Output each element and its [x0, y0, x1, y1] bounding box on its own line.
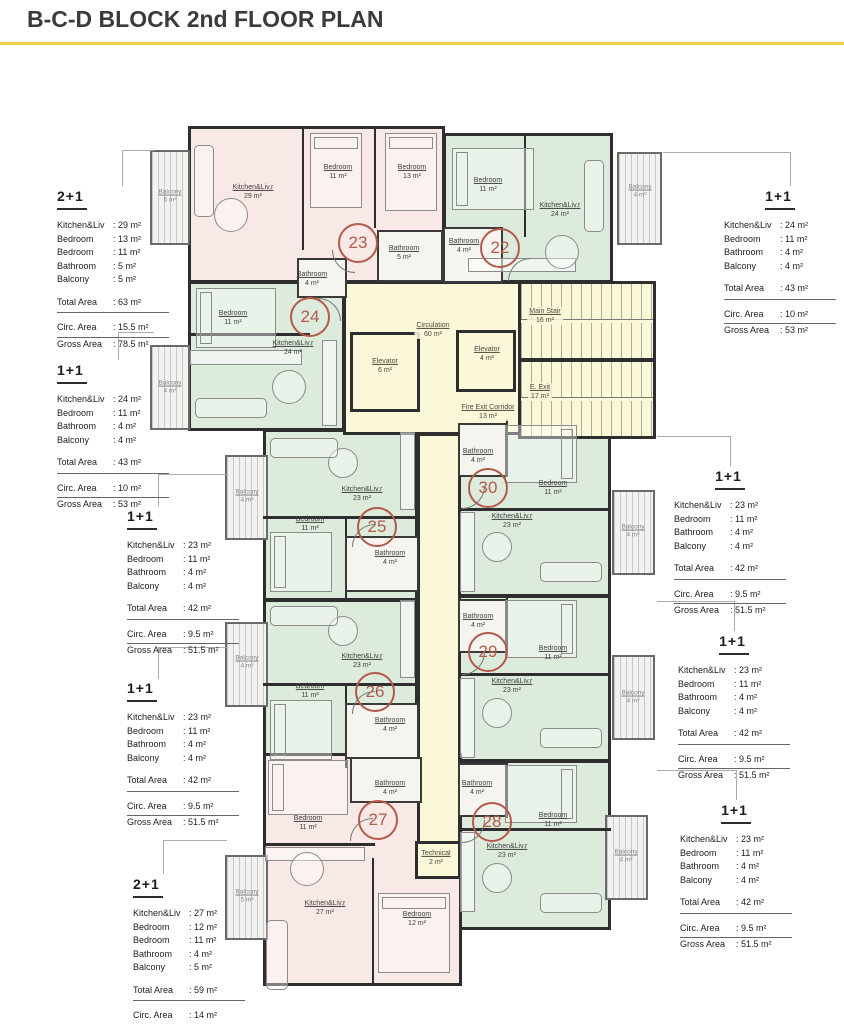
room-label: Bedroom11 m² [294, 814, 322, 832]
total-value: : 43 m² [113, 456, 169, 470]
room-area: 11 m² [539, 488, 567, 497]
sofa-furniture [540, 893, 602, 913]
room-name: Balcony [614, 849, 637, 857]
spec-item-label: Bedroom [133, 921, 189, 935]
partition-wall [374, 128, 376, 228]
kitchen-counter [322, 340, 337, 426]
room-name: Bathroom [375, 549, 405, 558]
spec-item-row: Bathroom: 4 m² [680, 860, 792, 874]
gross-label: Gross Area [127, 644, 183, 658]
spec-item-value: : 5 m² [113, 260, 169, 274]
spec-item-row: Bathroom: 4 m² [724, 246, 836, 260]
spec-item-row: Bathroom: 4 m² [57, 420, 169, 434]
elevator-1-label: Elevator6 m² [370, 357, 400, 375]
spec-item-value: : 4 m² [183, 738, 239, 752]
spec-item-value: : 11 m² [780, 233, 836, 247]
spec-item-label: Balcony [57, 273, 113, 287]
spec-item-value: : 4 m² [736, 874, 792, 888]
circ-label: Circ. Area [127, 800, 183, 814]
room-area: 13 m² [462, 412, 515, 421]
unit-number-24: 24 [290, 297, 330, 337]
unit-type-label: 2+1 [133, 874, 163, 898]
balcony-label: Balcony4 m² [628, 184, 651, 201]
spec-item-row: Bathroom: 4 m² [678, 691, 790, 705]
total-value: : 63 m² [113, 296, 169, 310]
spec-item-label: Kitchen&Liv [127, 539, 183, 553]
circ-area-row: Circ. Area: 9.5 m² [127, 800, 239, 817]
unit-type-label: 2+1 [57, 186, 87, 210]
room-name: Kitchen&Liv.r [305, 899, 346, 908]
pillow [561, 429, 573, 479]
total-area-row: Total Area: 42 m² [678, 727, 790, 745]
room-area: 4 m² [614, 857, 637, 865]
room-name: Elevator [474, 345, 500, 354]
spec-item-value: : 4 m² [780, 246, 836, 260]
circ-area-row: Circ. Area: 9.5 m² [678, 753, 790, 770]
spec-item-row: Bathroom: 5 m² [57, 260, 169, 274]
room-label: Bathroom4 m² [463, 612, 493, 630]
spec-item-label: Bedroom [680, 847, 736, 861]
total-area-row: Total Area: 43 m² [57, 456, 169, 474]
partition-wall [458, 508, 611, 511]
spec-item-row: Kitchen&Liv: 23 m² [678, 664, 790, 678]
dining-table-furniture [545, 235, 579, 269]
room-name: Bedroom [294, 814, 322, 823]
circ-label: Circ. Area [57, 321, 113, 335]
spec-item-row: Balcony: 5 m² [133, 961, 245, 975]
gross-label: Gross Area [678, 769, 734, 783]
technical-label: Technical2 m² [419, 849, 452, 867]
spec-item-label: Kitchen&Liv [127, 711, 183, 725]
room-label: Bedroom11 m² [539, 644, 567, 662]
unit-number-22: 22 [480, 228, 520, 268]
spec-item-value: : 23 m² [736, 833, 792, 847]
leader-line [790, 152, 791, 186]
spec-item-label: Kitchen&Liv [680, 833, 736, 847]
dining-table-furniture [290, 852, 324, 886]
spec-item-list: Kitchen&Liv: 23 m²Bedroom: 11 m²Bathroom… [127, 539, 239, 593]
gross-area-row: Gross Area: 51.5 m² [127, 816, 239, 830]
spec-item-value: : 4 m² [734, 691, 790, 705]
circ-gross-group: Circ. Area: 9.5 m² Gross Area: 51.5 m² [674, 588, 786, 618]
total-label: Total Area [724, 282, 780, 296]
spec-item-value: : 13 m² [113, 233, 169, 247]
room-name: Balcony [621, 524, 644, 532]
pillow [314, 137, 358, 149]
total-value: : 42 m² [730, 562, 786, 576]
room-name: Kitchen&Liv.r [540, 201, 581, 210]
spec-item-label: Bathroom [127, 738, 183, 752]
room-area: 23 m² [492, 686, 533, 695]
room-name: Technical [421, 849, 450, 858]
spec-item-label: Bathroom [724, 246, 780, 260]
gross-area-row: Gross Area: 51.5 m² [674, 604, 786, 618]
room-area: 11 m² [539, 820, 567, 829]
room-area: 12 m² [403, 919, 431, 928]
kitchen-counter [400, 600, 415, 678]
gross-label: Gross Area [680, 938, 736, 952]
total-area-row: Total Area: 43 m² [724, 282, 836, 300]
sofa-furniture [540, 728, 602, 748]
circ-value: : 9.5 m² [734, 753, 790, 767]
circ-value: : 9.5 m² [183, 800, 239, 814]
room-name: Bathroom [375, 779, 405, 788]
room-label: Kitchen&Liv.r23 m² [492, 677, 533, 695]
circ-area-row: Circ. Area: 15.5 m² [57, 321, 169, 338]
spec-item-label: Bathroom [127, 566, 183, 580]
spec-item-value: : 11 m² [113, 246, 169, 260]
room-area: 24 m² [273, 348, 314, 357]
gross-value: : 51.5 m² [183, 816, 239, 830]
spec-item-value: : 4 m² [183, 566, 239, 580]
spec-item-row: Kitchen&Liv: 23 m² [674, 499, 786, 513]
partition-wall [263, 683, 418, 686]
room-label: Bathroom4 m² [297, 270, 327, 288]
spec-item-value: : 4 m² [780, 260, 836, 274]
spec-item-row: Bathroom: 4 m² [127, 566, 239, 580]
spec-box-right-3: 1+1 Kitchen&Liv: 23 m²Bedroom: 11 m²Bath… [678, 631, 790, 783]
spec-item-label: Kitchen&Liv [57, 219, 113, 233]
room-label: Kitchen&Liv.r23 m² [342, 652, 383, 670]
room-area: 27 m² [305, 908, 346, 917]
total-label: Total Area [680, 896, 736, 910]
dining-table-furniture [482, 863, 512, 893]
spec-item-label: Kitchen&Liv [674, 499, 730, 513]
room-name: Kitchen&Liv.r [487, 842, 528, 851]
room-area: 5 m² [389, 253, 419, 262]
total-label: Total Area [674, 562, 730, 576]
room-label: Bedroom11 m² [539, 811, 567, 829]
sofa-furniture [194, 145, 214, 217]
spec-item-value: : 23 m² [730, 499, 786, 513]
spec-item-row: Bedroom: 11 m² [57, 407, 169, 421]
circ-label: Circ. Area [724, 308, 780, 322]
circ-gross-group: Circ. Area: 9.5 m² Gross Area: 51.5 m² [678, 753, 790, 783]
unit-type-label: 1+1 [765, 186, 795, 210]
room-name: Bathroom [449, 237, 479, 246]
total-area-row: Total Area: 42 m² [680, 896, 792, 914]
room-area: 4 m² [463, 621, 493, 630]
spec-item-label: Bedroom [133, 934, 189, 948]
spec-item-value: : 23 m² [183, 711, 239, 725]
bed-furniture [505, 425, 577, 483]
unit-number-29: 29 [468, 632, 508, 672]
sofa-furniture [584, 160, 604, 232]
circ-label: Circ. Area [127, 628, 183, 642]
gross-label: Gross Area [127, 816, 183, 830]
room-name: Bathroom [462, 779, 492, 788]
spec-item-value: : 11 m² [734, 678, 790, 692]
room-name: Kitchen&Liv.r [492, 512, 533, 521]
spec-item-label: Bedroom [57, 233, 113, 247]
spec-item-row: Balcony: 4 m² [724, 260, 836, 274]
room-area: 17 m² [530, 392, 550, 401]
total-label: Total Area [678, 727, 734, 741]
room-area: 4 m² [235, 497, 258, 505]
room-area: 4 m² [628, 192, 651, 200]
spec-item-label: Bedroom [127, 725, 183, 739]
room-name: Main Stair [529, 307, 561, 316]
partition-wall [302, 128, 304, 250]
spec-item-value: : 11 m² [736, 847, 792, 861]
spec-box-left-5: 2+1 Kitchen&Liv: 27 m²Bedroom: 12 m²Bedr… [133, 874, 245, 1024]
circ-value: : 15.5 m² [113, 321, 169, 335]
unit-number-28: 28 [472, 802, 512, 842]
balcony-label: Balcony4 m² [621, 524, 644, 541]
spec-item-value: : 4 m² [736, 860, 792, 874]
room-name: Kitchen&Liv.r [342, 485, 383, 494]
total-value: : 42 m² [736, 896, 792, 910]
dining-table-furniture [482, 698, 512, 728]
spec-box-right-4: 1+1 Kitchen&Liv: 23 m²Bedroom: 11 m²Bath… [680, 800, 792, 952]
spec-item-row: Bedroom: 11 m² [724, 233, 836, 247]
spec-item-row: Balcony: 4 m² [127, 752, 239, 766]
room-name: Bathroom [463, 612, 493, 621]
total-area-row: Total Area: 42 m² [127, 774, 239, 792]
unit-number-30: 30 [468, 468, 508, 508]
room-area: 4 m² [375, 558, 405, 567]
kitchen-counter [460, 678, 475, 758]
spec-box-left-3: 1+1 Kitchen&Liv: 23 m²Bedroom: 11 m²Bath… [127, 506, 239, 658]
spec-item-row: Balcony: 4 m² [57, 434, 169, 448]
sofa-furniture [270, 438, 338, 458]
spec-item-value: : 11 m² [189, 934, 245, 948]
room-area: 29 m² [233, 192, 274, 201]
room-name: Elevator [372, 357, 398, 366]
room-area: 23 m² [487, 851, 528, 860]
spec-item-row: Bedroom: 13 m² [57, 233, 169, 247]
spec-item-value: : 4 m² [730, 526, 786, 540]
spec-item-value: : 11 m² [183, 725, 239, 739]
total-value: : 43 m² [780, 282, 836, 296]
spec-item-label: Balcony [127, 752, 183, 766]
spec-item-value: : 4 m² [183, 752, 239, 766]
spec-item-value: : 29 m² [113, 219, 169, 233]
leader-line [163, 840, 227, 841]
elevator-2-label: Elevator4 m² [472, 345, 502, 363]
circ-gross-group: Circ. Area: 9.5 m² Gross Area: 51.5 m² [127, 800, 239, 830]
spec-item-row: Bedroom: 11 m² [57, 246, 169, 260]
circulation-label: Circulation60 m² [414, 321, 451, 339]
spec-box-left-4: 1+1 Kitchen&Liv: 23 m²Bedroom: 11 m²Bath… [127, 678, 239, 830]
room-label: Kitchen&Liv.r23 m² [487, 842, 528, 860]
spec-item-row: Bedroom: 11 m² [678, 678, 790, 692]
unit-number-27: 27 [358, 800, 398, 840]
circ-area-row: Circ. Area: 10 m² [724, 308, 836, 325]
spec-box-left-1: 2+1 Kitchen&Liv: 29 m²Bedroom: 13 m²Bedr… [57, 186, 169, 351]
sofa-furniture [195, 398, 267, 418]
fire-exit-corridor-label: Fire Exit Corridor13 m² [460, 403, 517, 421]
room-name: Bedroom [296, 682, 324, 691]
unit-type-label: 1+1 [127, 506, 157, 530]
room-label: Kitchen&Liv.r29 m² [233, 183, 274, 201]
unit-type-label: 1+1 [57, 360, 87, 384]
room-label: Bedroom11 m² [539, 479, 567, 497]
room-name: Kitchen&Liv.r [342, 652, 383, 661]
balcony-label: Balcony4 m² [614, 849, 637, 866]
total-value: : 42 m² [183, 602, 239, 616]
spec-item-row: Kitchen&Liv: 24 m² [57, 393, 169, 407]
room-label: Kitchen&Liv.r24 m² [273, 339, 314, 357]
title-underline [0, 42, 844, 45]
room-name: Balcony [235, 489, 258, 497]
spec-item-value: : 11 m² [113, 407, 169, 421]
spec-item-list: Kitchen&Liv: 24 m²Bedroom: 11 m²Bathroom… [724, 219, 836, 273]
circ-value: : 9.5 m² [730, 588, 786, 602]
spec-item-label: Balcony [133, 961, 189, 975]
room-area: 16 m² [529, 316, 561, 325]
room-label: Bedroom11 m² [296, 682, 324, 700]
spec-item-value: : 4 m² [113, 420, 169, 434]
room-name: Bedroom [539, 644, 567, 653]
spec-box-left-2: 1+1 Kitchen&Liv: 24 m²Bedroom: 11 m²Bath… [57, 360, 169, 512]
room-area: 4 m² [621, 532, 644, 540]
spec-item-row: Kitchen&Liv: 29 m² [57, 219, 169, 233]
unit-type-label: 1+1 [127, 678, 157, 702]
spec-item-value: : 5 m² [113, 273, 169, 287]
spec-item-label: Bedroom [724, 233, 780, 247]
circ-area-row: Circ. Area: 10 m² [57, 482, 169, 499]
bed-furniture [270, 532, 332, 592]
spec-item-row: Bedroom: 12 m² [133, 921, 245, 935]
pillow [200, 292, 212, 344]
spec-item-row: Bathroom: 4 m² [127, 738, 239, 752]
leader-line [730, 436, 731, 466]
spec-item-label: Bedroom [57, 246, 113, 260]
spec-item-label: Bathroom [678, 691, 734, 705]
spec-item-list: Kitchen&Liv: 23 m²Bedroom: 11 m²Bathroom… [678, 664, 790, 718]
spec-item-row: Bedroom: 11 m² [674, 513, 786, 527]
circ-gross-group: Circ. Area: 10 m² Gross Area: 53 m² [724, 308, 836, 338]
room-label: Bedroom12 m² [403, 910, 431, 928]
room-area: 4 m² [463, 456, 493, 465]
spec-item-label: Balcony [127, 580, 183, 594]
leader-line [663, 152, 790, 153]
dining-table-furniture [272, 370, 306, 404]
spec-item-value: : 11 m² [730, 513, 786, 527]
circ-value: : 14 m² [189, 1009, 245, 1023]
spec-item-row: Bathroom: 4 m² [133, 948, 245, 962]
room-area: 4 m² [621, 698, 644, 706]
spec-item-value: : 12 m² [189, 921, 245, 935]
leader-line [122, 150, 123, 186]
total-label: Total Area [127, 602, 183, 616]
spec-item-label: Bathroom [133, 948, 189, 962]
spec-item-value: : 23 m² [734, 664, 790, 678]
room-label: Bathroom4 m² [449, 237, 479, 255]
spec-item-label: Kitchen&Liv [724, 219, 780, 233]
partition-wall [372, 858, 374, 986]
room-name: Bedroom [539, 479, 567, 488]
room-label: Bathroom4 m² [463, 447, 493, 465]
gross-label: Gross Area [724, 324, 780, 338]
dining-table-furniture [214, 198, 248, 232]
gross-value: : 51.5 m² [730, 604, 786, 618]
unit-number-23: 23 [338, 223, 378, 263]
circ-label: Circ. Area [680, 922, 736, 936]
balcony-label: Balcony4 m² [621, 690, 644, 707]
spec-item-row: Bedroom: 11 m² [680, 847, 792, 861]
dining-table-furniture [482, 532, 512, 562]
room-area: 23 m² [492, 521, 533, 530]
room-name: Bedroom [403, 910, 431, 919]
gross-area-row: Gross Area: 51.5 m² [127, 644, 239, 658]
room-area: 4 m² [449, 246, 479, 255]
room-area: 23 m² [342, 661, 383, 670]
circ-area-row: Circ. Area: 9.5 m² [127, 628, 239, 645]
kitchen-counter [460, 832, 475, 912]
pillow [389, 137, 433, 149]
spec-item-value: : 4 m² [734, 705, 790, 719]
spec-item-value: : 27 m² [189, 907, 245, 921]
total-label: Total Area [57, 456, 113, 470]
pillow [382, 897, 446, 909]
spec-item-value: : 4 m² [189, 948, 245, 962]
circ-value: : 9.5 m² [736, 922, 792, 936]
circ-gross-group: Circ. Area: 9.5 m² Gross Area: 51.5 m² [127, 628, 239, 658]
spec-item-row: Balcony: 4 m² [680, 874, 792, 888]
room-label: Bedroom11 m² [296, 515, 324, 533]
room-label: Bathroom4 m² [375, 716, 405, 734]
spec-item-list: Kitchen&Liv: 23 m²Bedroom: 11 m²Bathroom… [674, 499, 786, 553]
leader-line [657, 436, 731, 437]
spec-item-value: : 4 m² [113, 434, 169, 448]
spec-item-row: Kitchen&Liv: 23 m² [127, 539, 239, 553]
room-name: Bedroom [296, 515, 324, 524]
spec-item-row: Balcony: 4 m² [678, 705, 790, 719]
gross-area-row: Gross Area: 51.5 m² [678, 769, 790, 783]
bed-furniture [378, 893, 450, 973]
circ-label: Circ. Area [678, 753, 734, 767]
spec-item-list: Kitchen&Liv: 24 m²Bedroom: 11 m²Bathroom… [57, 393, 169, 447]
gross-label: Gross Area [57, 498, 113, 512]
room-name: Bedroom [324, 163, 352, 172]
spec-item-value: : 4 m² [730, 540, 786, 554]
room-name: E. Exit [530, 383, 550, 392]
room-label: Bedroom11 m² [324, 163, 352, 181]
room-area: 4 m² [462, 788, 492, 797]
circ-label: Circ. Area [57, 482, 113, 496]
room-area: 11 m² [324, 172, 352, 181]
total-area-row: Total Area: 42 m² [127, 602, 239, 620]
sofa-furniture [266, 920, 288, 990]
unit-type-label: 1+1 [721, 800, 751, 824]
circ-value: : 9.5 m² [183, 628, 239, 642]
room-name: Circulation [416, 321, 449, 330]
partition-wall [458, 673, 611, 676]
circ-label: Circ. Area [133, 1009, 189, 1023]
page-title: B-C-D BLOCK 2nd FLOOR PLAN [27, 6, 383, 33]
gross-label: Gross Area [57, 338, 113, 352]
room-area: 13 m² [398, 172, 426, 181]
room-area: 23 m² [342, 494, 383, 503]
room-label: Bedroom13 m² [398, 163, 426, 181]
spec-item-row: Bedroom: 11 m² [133, 934, 245, 948]
room-name: Fire Exit Corridor [462, 403, 515, 412]
corridor-spine [417, 433, 461, 855]
gross-area-row: Gross Area: 51.5 m² [680, 938, 792, 952]
room-area: 4 m² [375, 788, 405, 797]
gross-value: : 51.5 m² [183, 644, 239, 658]
gross-area-row: Gross Area: 78.5 m² [57, 338, 169, 352]
spec-item-label: Balcony [680, 874, 736, 888]
spec-item-label: Balcony [57, 434, 113, 448]
room-label: Kitchen&Liv.r27 m² [305, 899, 346, 917]
room-name: Kitchen&Liv.r [492, 677, 533, 686]
pillow [456, 152, 468, 206]
spec-item-label: Bathroom [674, 526, 730, 540]
room-name: Kitchen&Liv.r [233, 183, 274, 192]
